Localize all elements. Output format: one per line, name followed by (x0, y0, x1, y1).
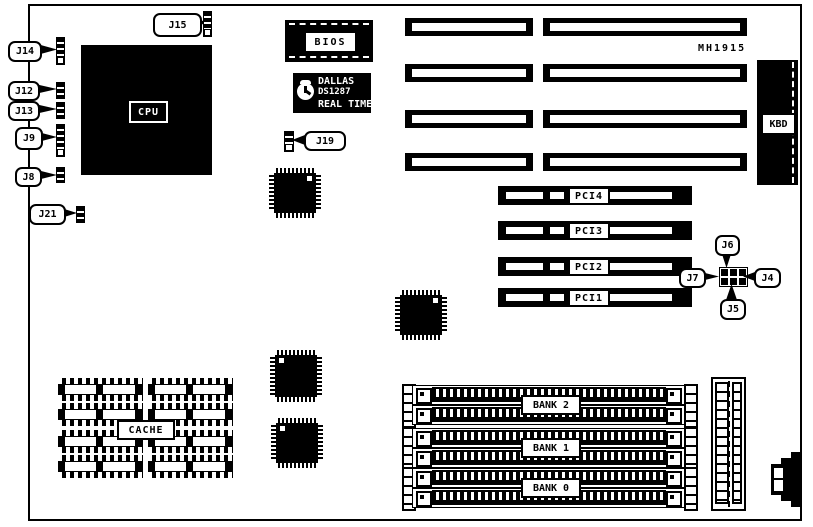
jumper-block-icon (719, 267, 748, 287)
jumper-callout-j19: J19 (304, 131, 346, 151)
jumper-label-j8: J8 (22, 172, 34, 183)
cache-label: CACHE (117, 420, 175, 440)
j12-pin-header-icon (56, 82, 65, 99)
bank0-label-text: BANK 0 (533, 483, 569, 494)
cache-chip (58, 378, 143, 401)
qfp-chip-3 (270, 350, 322, 402)
jumper-cell (739, 278, 746, 285)
jumper-cell (730, 269, 737, 276)
pci-slot-key (550, 294, 564, 301)
pci-slot-pci4: PCI4 (498, 186, 692, 205)
rtc-part-number: DS1287 (318, 88, 351, 97)
pci-slot-key (550, 192, 564, 199)
jumper-callout-j9: J9 (15, 127, 43, 150)
pci2-label: PCI2 (568, 258, 610, 276)
power-dash-line (728, 381, 730, 507)
rtc-realtime-text: REAL TIME (318, 100, 372, 110)
bank2-label: BANK 2 (521, 395, 581, 415)
qfp-pins (318, 425, 323, 461)
pci4-label-text: PCI4 (575, 191, 603, 202)
qfp-chip-1 (269, 168, 321, 218)
cache-label-text: CACHE (128, 425, 163, 436)
pci2-label-text: PCI2 (575, 262, 603, 273)
bios-dash-bottom (289, 56, 369, 58)
isa-slot-4-short (405, 153, 533, 171)
qfp-pins (278, 463, 316, 468)
pci-slot-key (506, 192, 543, 199)
cache-chip-slots (148, 410, 233, 419)
pci-slot-key (506, 227, 543, 234)
jumper-callout-j13: J13 (8, 101, 40, 121)
cpu-label: CPU (129, 101, 168, 123)
j19-pin-header-icon (284, 131, 294, 152)
cache-chip-slots (58, 385, 143, 394)
bios-dash-top (289, 23, 369, 25)
j8-pin-header-icon (56, 167, 65, 183)
simm-latch-icon (416, 491, 432, 507)
pci1-label: PCI1 (568, 289, 610, 307)
cache-chip-slots (58, 410, 143, 419)
pin1-dot-icon (433, 298, 438, 303)
bank0-label: BANK 0 (521, 478, 581, 498)
cache-chip (148, 455, 233, 478)
jumper-callout-j5: J5 (720, 299, 746, 320)
jumper-cell (730, 278, 737, 285)
jumper-callout-j8: J8 (15, 167, 42, 187)
j14-pin-header-icon (56, 37, 65, 65)
jumper-cell (721, 278, 728, 285)
simm-latch-icon (666, 471, 682, 487)
rtc-chip: DALLAS DS1287 REAL TIME (293, 73, 371, 113)
motherboard-diagram: J14 J12 J13 J9 J8 J21 J15 CPU BIOS DALLA… (0, 0, 813, 527)
qfp-chip-2 (395, 290, 447, 340)
pci-slot-key (609, 227, 672, 234)
power-pin-column (732, 382, 742, 504)
cpu-label-text: CPU (138, 107, 159, 118)
simm-latch-icon (666, 431, 682, 447)
jumper-label-j21: J21 (38, 209, 56, 220)
qfp-pins (276, 213, 314, 218)
cache-chip-slots (148, 385, 233, 394)
simm-latch-icon (666, 491, 682, 507)
pci-slot-key (550, 263, 564, 270)
isa-slot-3-short (405, 110, 533, 128)
simm-latch-icon (416, 388, 432, 404)
pci-slot-key (506, 263, 543, 270)
rtc-brand-text: DALLAS (318, 77, 354, 87)
qfp-pins (402, 335, 440, 340)
j15-pin-header-icon (203, 11, 212, 37)
power-pin-column (715, 382, 729, 504)
j21-pin-header-icon (76, 206, 85, 223)
jumper-callout-j15: J15 (153, 13, 202, 37)
pin1-dot-icon (279, 358, 284, 363)
pci1-label-text: PCI1 (575, 293, 603, 304)
simm-latch-icon (416, 451, 432, 467)
simm-latch-icon (666, 408, 682, 424)
jumper-label-j6: J6 (721, 240, 733, 251)
edge-connector-pin (772, 478, 785, 493)
jumper-label-j12: J12 (15, 86, 33, 97)
cache-chip-slots (148, 462, 233, 471)
jumper-callout-j6: J6 (715, 235, 740, 256)
cache-chip-slots (58, 462, 143, 471)
jumper-label-j14: J14 (16, 46, 34, 57)
simm-end-cap (684, 467, 698, 511)
j9-pin-header-icon (56, 124, 65, 157)
isa-slot-3-long (543, 110, 747, 128)
jumper-cell (739, 269, 746, 276)
jumper-callout-j4: J4 (754, 268, 781, 288)
jumper-label-j7: J7 (686, 273, 698, 284)
pci3-label: PCI3 (568, 222, 610, 240)
simm-latch-icon (416, 471, 432, 487)
board-model-note: MH1915 (698, 43, 746, 54)
pci-slot-pci3: PCI3 (498, 221, 692, 240)
bank1-label-text: BANK 1 (533, 443, 569, 454)
jumper-label-j4: J4 (761, 273, 773, 284)
jumper-cell (721, 269, 728, 276)
simm-latch-icon (666, 451, 682, 467)
kbd-label-text: KBD (769, 119, 787, 130)
pin1-dot-icon (280, 426, 285, 431)
pci-slot-pci2: PCI2 (498, 257, 692, 276)
cache-chip (58, 455, 143, 478)
isa-slot-2-long (543, 64, 747, 82)
jumper-label-j9: J9 (23, 133, 35, 144)
bank1-label: BANK 1 (521, 438, 581, 458)
pci-slot-key (506, 294, 543, 301)
isa-slot-1-short (405, 18, 533, 36)
pci-slot-key (550, 227, 564, 234)
jumper-callout-j7: J7 (679, 268, 706, 288)
kbd-label: KBD (761, 113, 796, 135)
pci3-label-text: PCI3 (575, 226, 603, 237)
simm-end-cap (684, 384, 698, 428)
pci4-label: PCI4 (568, 187, 610, 205)
bios-label: BIOS (304, 31, 357, 53)
jumper-callout-j21: J21 (29, 204, 66, 225)
pci-slot-pci1: PCI1 (498, 288, 692, 307)
jumper-label-j19: J19 (316, 136, 334, 147)
isa-slot-1-long (543, 18, 747, 36)
jumper-label-j13: J13 (15, 106, 33, 117)
clock-icon (297, 83, 314, 100)
qfp-pins (316, 175, 321, 211)
simm-latch-icon (666, 388, 682, 404)
jumper-callout-j12: J12 (8, 81, 40, 101)
qfp-pins (277, 397, 315, 402)
jumper-callout-j14: J14 (8, 41, 42, 62)
qfp-pins (442, 297, 447, 333)
pci-slot-key (609, 294, 672, 301)
cache-chip (148, 378, 233, 401)
isa-slot-4-long (543, 153, 747, 171)
qfp-pins (317, 357, 322, 395)
bank2-label-text: BANK 2 (533, 400, 569, 411)
j13-pin-header-icon (56, 102, 65, 119)
simm-end-cap (684, 427, 698, 471)
pci-slot-key (609, 263, 672, 270)
simm-latch-icon (416, 408, 432, 424)
jumper-label-j5: J5 (727, 304, 739, 315)
jumper-label-j15: J15 (168, 20, 186, 31)
power-connector (711, 377, 746, 511)
isa-slot-2-short (405, 64, 533, 82)
pin1-dot-icon (307, 176, 312, 181)
qfp-chip-4 (271, 418, 323, 468)
pci-slot-key (609, 192, 672, 199)
simm-latch-icon (416, 431, 432, 447)
bios-label-text: BIOS (314, 37, 346, 48)
